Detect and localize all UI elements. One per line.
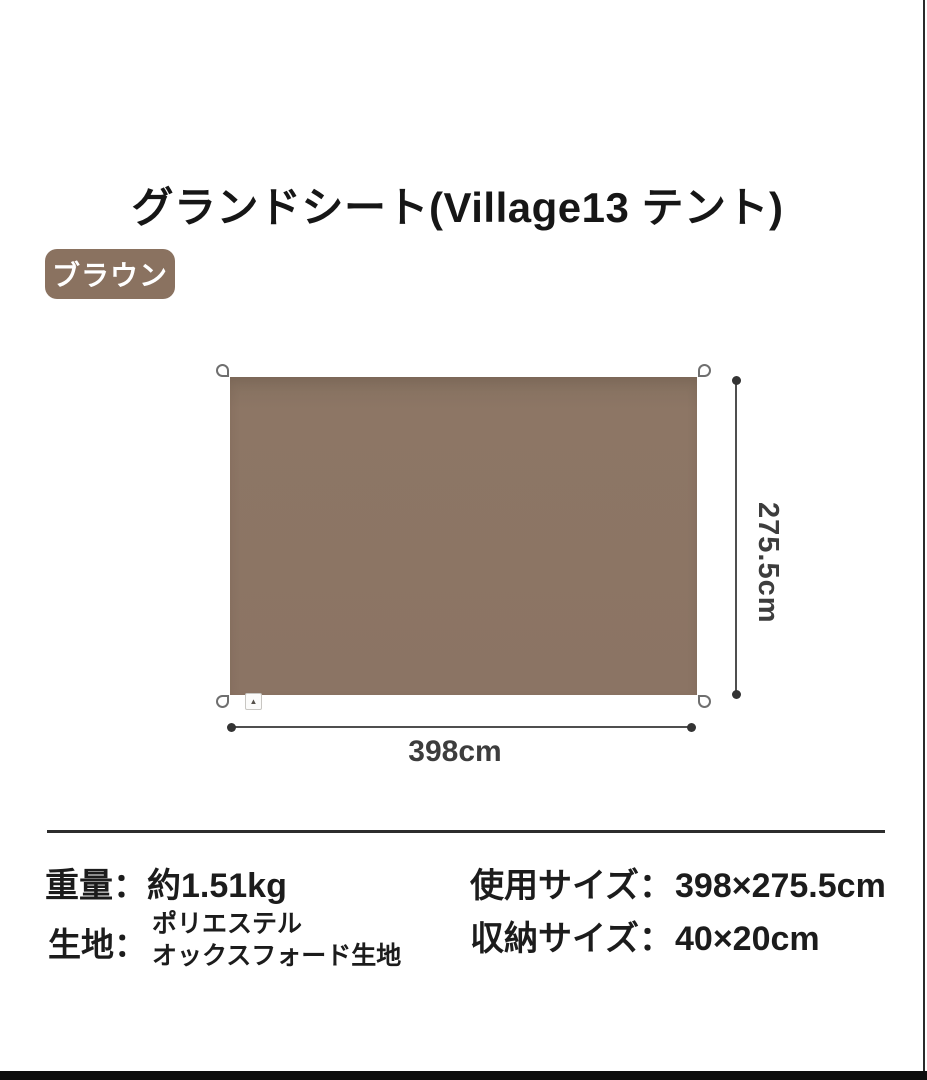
- photo-frame-bottom-bar: [0, 1071, 927, 1080]
- width-dimension-line: [232, 726, 691, 728]
- corner-loop-icon: [698, 364, 711, 377]
- dimension-endpoint-dot: [732, 690, 741, 699]
- corner-loop-icon: [216, 364, 229, 377]
- photo-frame-right-edge: [923, 0, 925, 1080]
- specs-section: 重量： 約1.51kg 生地： ポリエステル オックスフォード生地 使用サイズ：…: [0, 840, 927, 1000]
- product-spec-image: グランドシート(Village13 テント) ブラウン ▲ 275.5cm 39…: [0, 0, 927, 1080]
- dimension-endpoint-dot: [687, 723, 696, 732]
- use-size-value: 398×275.5cm: [675, 869, 886, 903]
- weight-label: 重量：: [45, 869, 147, 903]
- fabric-label: 生地：: [48, 928, 147, 961]
- weight-value: 約1.51kg: [147, 869, 287, 903]
- corner-loop-icon: [216, 695, 229, 708]
- groundsheet-rect: [230, 377, 697, 695]
- height-dimension-label: 275.5cm: [751, 502, 784, 624]
- dimension-endpoint-dot: [732, 376, 741, 385]
- corner-loop-icon: [698, 695, 711, 708]
- groundsheet-diagram: ▲ 275.5cm 398cm: [0, 0, 927, 800]
- width-dimension-label: 398cm: [355, 735, 555, 769]
- divider-line: [47, 830, 885, 833]
- brand-tag-icon: ▲: [245, 693, 262, 710]
- fabric-value-line2: オックスフォード生地: [152, 944, 401, 969]
- fabric-value-line1: ポリエステル: [152, 912, 302, 937]
- storage-size-label: 収納サイズ：: [470, 922, 673, 956]
- height-dimension-line: [735, 381, 737, 694]
- use-size-label: 使用サイズ：: [470, 869, 673, 903]
- dimension-endpoint-dot: [227, 723, 236, 732]
- storage-size-value: 40×20cm: [675, 922, 820, 956]
